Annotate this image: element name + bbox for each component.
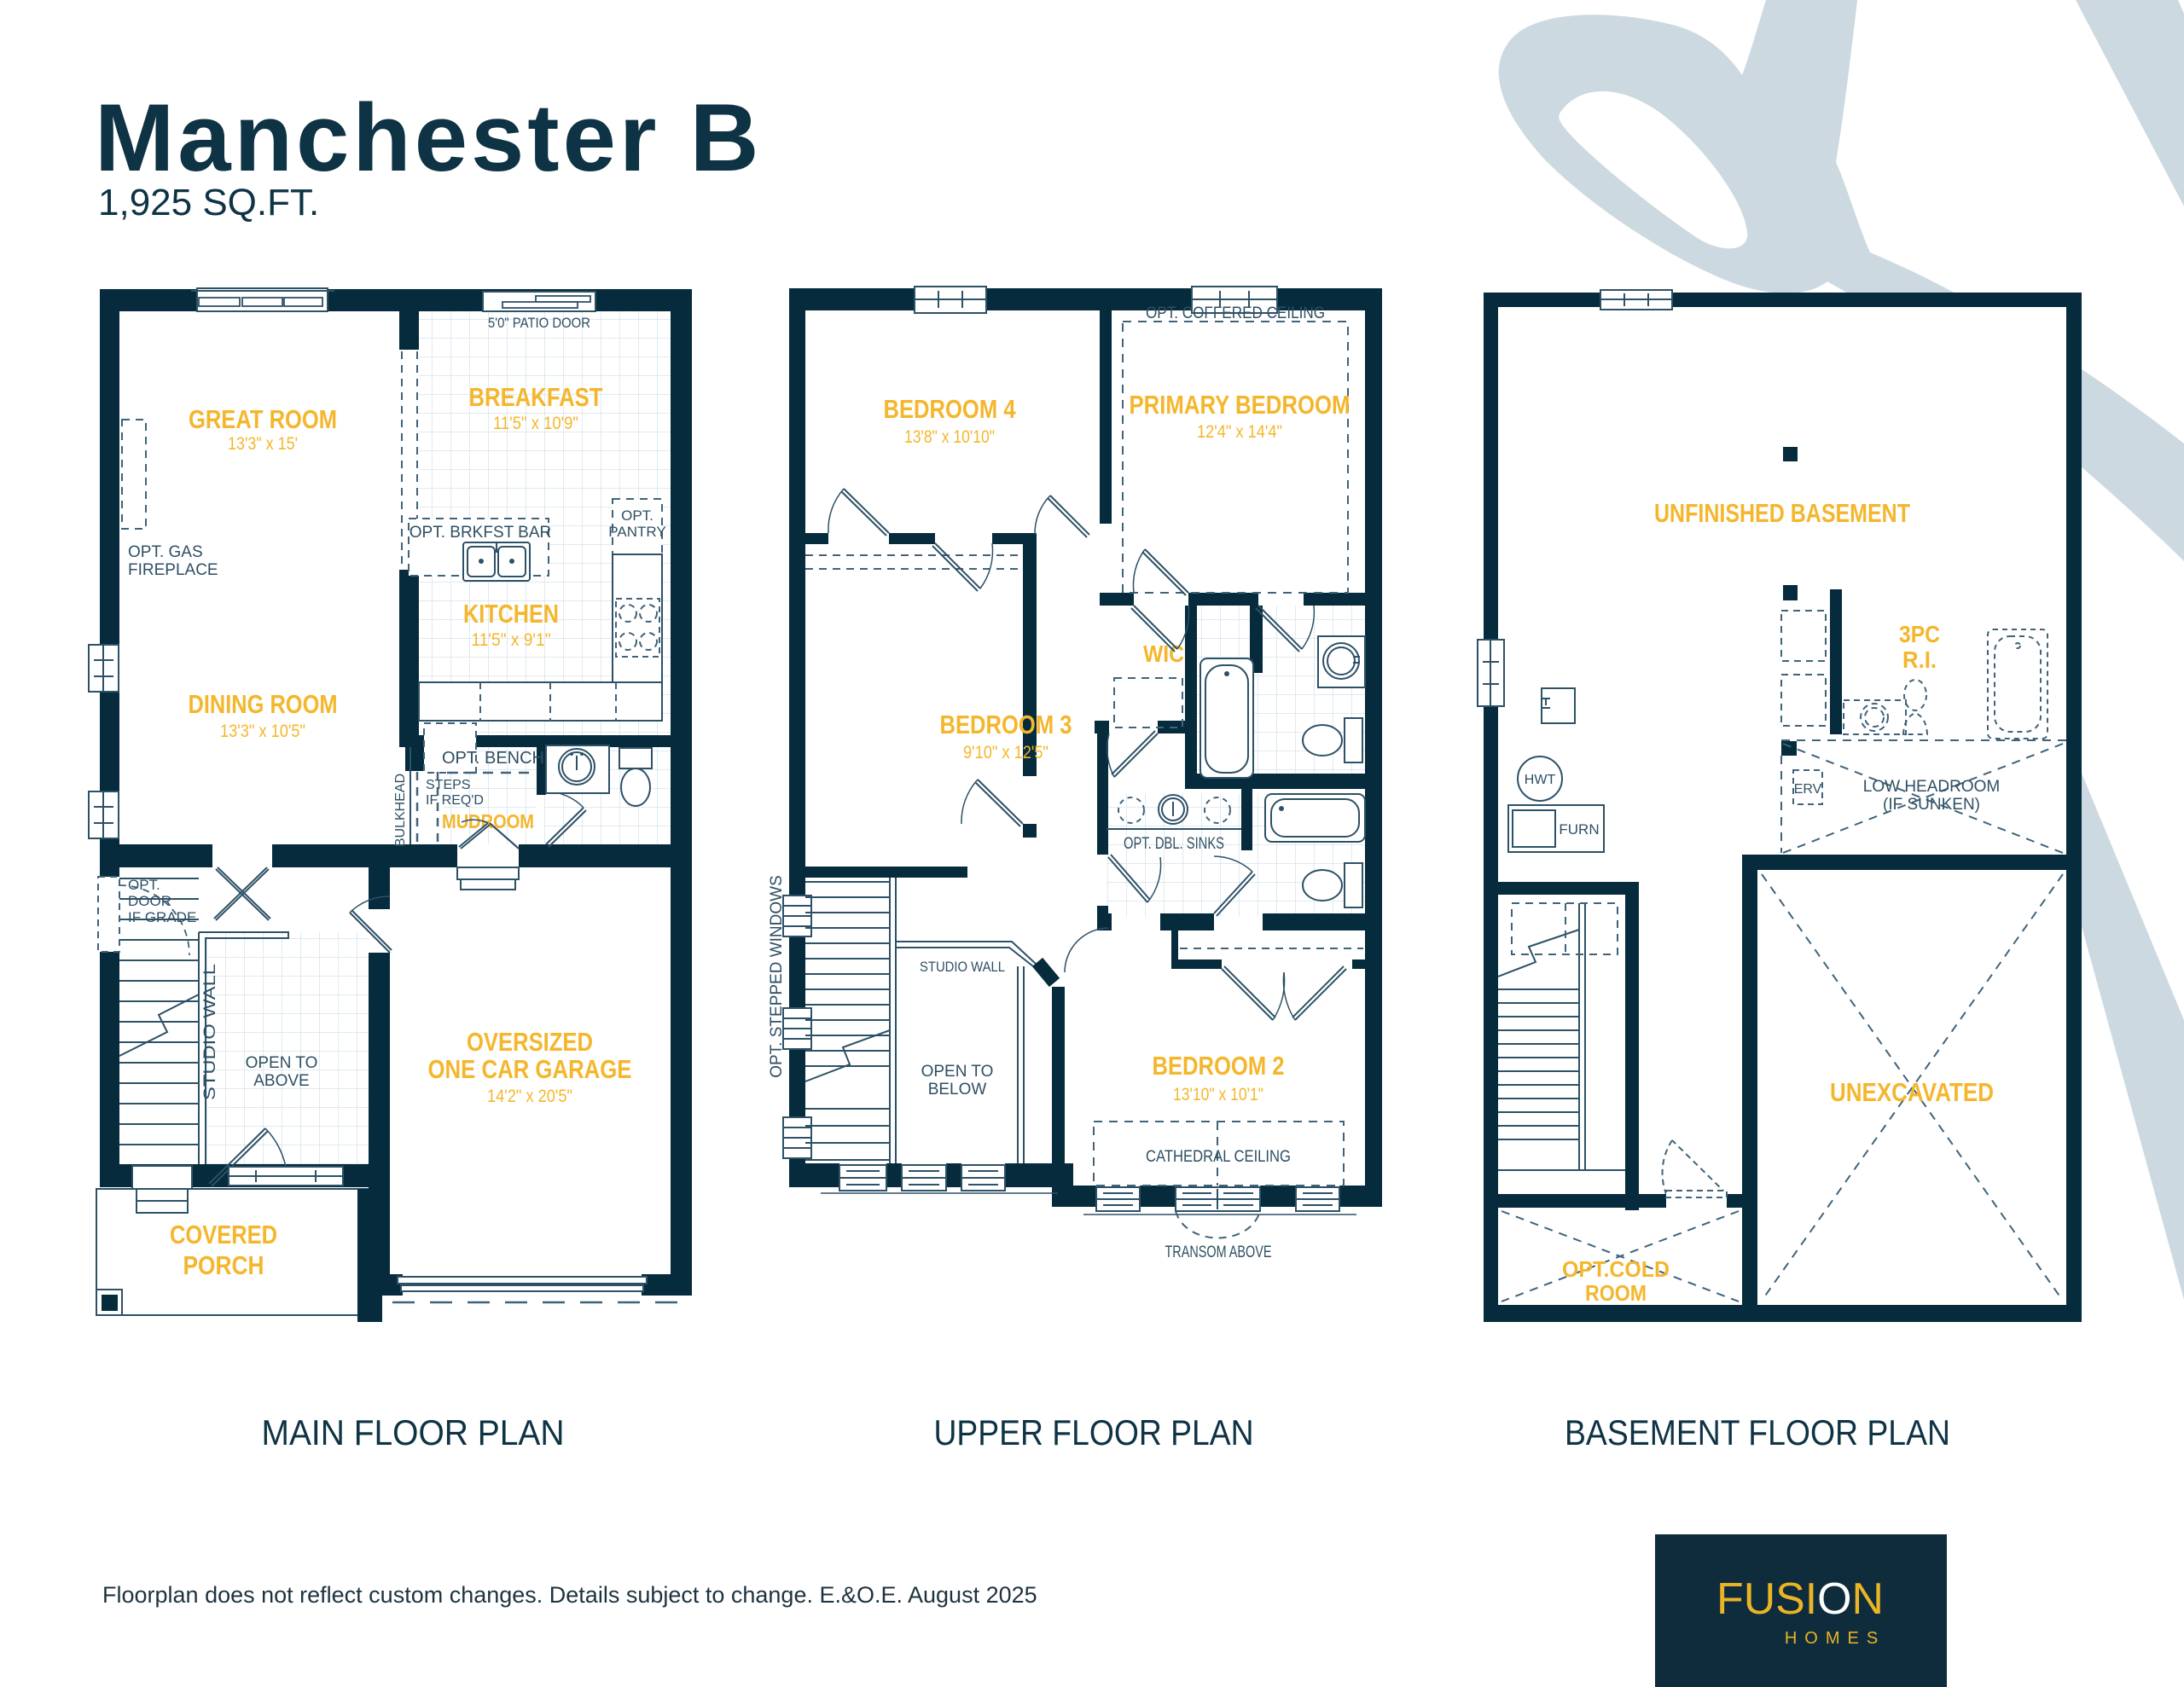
svg-text:ONE CAR GARAGE: ONE CAR GARAGE xyxy=(428,1054,632,1084)
svg-text:11'5" x 9'1": 11'5" x 9'1" xyxy=(472,630,551,650)
svg-text:OPT.: OPT. xyxy=(128,877,160,893)
svg-text:OPEN TO: OPEN TO xyxy=(921,1063,994,1081)
svg-text:BEDROOM 2: BEDROOM 2 xyxy=(1153,1051,1285,1081)
svg-text:BEDROOM 4: BEDROOM 4 xyxy=(884,394,1017,424)
svg-text:IF REQ'D: IF REQ'D xyxy=(426,793,484,808)
svg-text:OPT. DBL. SINKS: OPT. DBL. SINKS xyxy=(1124,835,1224,853)
svg-text:HWT: HWT xyxy=(1525,773,1556,787)
svg-text:DINING ROOM: DINING ROOM xyxy=(189,689,338,719)
svg-text:COVERED: COVERED xyxy=(170,1220,277,1249)
svg-text:Floorplan does not reflect cus: Floorplan does not reflect custom change… xyxy=(102,1582,1037,1608)
svg-text:UNFINISHED BASEMENT: UNFINISHED BASEMENT xyxy=(1654,498,1910,528)
svg-text:ROOM: ROOM xyxy=(1585,1280,1647,1306)
svg-text:IF GRADE: IF GRADE xyxy=(128,909,196,925)
svg-text:BASEMENT FLOOR PLAN: BASEMENT FLOOR PLAN xyxy=(1565,1412,1950,1452)
svg-text:PRIMARY BEDROOM: PRIMARY BEDROOM xyxy=(1130,390,1350,420)
svg-text:5'0" PATIO DOOR: 5'0" PATIO DOOR xyxy=(488,315,590,331)
svg-text:13'3" x 10'5": 13'3" x 10'5" xyxy=(220,722,305,741)
svg-text:OPT. COFFERED CEILING: OPT. COFFERED CEILING xyxy=(1146,304,1325,322)
svg-text:MAIN FLOOR PLAN: MAIN FLOOR PLAN xyxy=(262,1412,565,1452)
svg-text:1,925 SQ.FT.: 1,925 SQ.FT. xyxy=(98,182,319,223)
svg-text:(IF SUNKEN): (IF SUNKEN) xyxy=(1883,796,1980,814)
svg-text:ERV: ERV xyxy=(1794,782,1822,797)
svg-text:13'8" x 10'10": 13'8" x 10'10" xyxy=(904,427,995,447)
svg-text:BELOW: BELOW xyxy=(928,1081,987,1099)
svg-text:DOOR: DOOR xyxy=(128,893,171,909)
svg-text:OPT. STEPPED WINDOWS: OPT. STEPPED WINDOWS xyxy=(768,875,786,1078)
svg-text:BULKHEAD: BULKHEAD xyxy=(393,774,408,847)
svg-text:ABOVE: ABOVE xyxy=(253,1072,309,1090)
svg-text:13'3" x 15': 13'3" x 15' xyxy=(228,434,298,454)
svg-text:OPT.: OPT. xyxy=(621,507,653,524)
svg-text:MUDROOM: MUDROOM xyxy=(442,810,534,832)
svg-text:KITCHEN: KITCHEN xyxy=(463,599,559,629)
svg-text:OPT. BENCH: OPT. BENCH xyxy=(442,749,544,768)
svg-text:GREAT ROOM: GREAT ROOM xyxy=(189,404,337,434)
svg-text:OPT.COLD: OPT.COLD xyxy=(1562,1256,1670,1282)
svg-text:TRANSOM ABOVE: TRANSOM ABOVE xyxy=(1165,1244,1272,1261)
svg-text:FURN: FURN xyxy=(1559,821,1599,838)
svg-text:BEDROOM 3: BEDROOM 3 xyxy=(940,710,1072,739)
svg-text:PANTRY: PANTRY xyxy=(608,524,665,540)
svg-text:FIREPLACE: FIREPLACE xyxy=(128,561,218,579)
svg-text:3PC: 3PC xyxy=(1899,621,1940,647)
svg-text:BREAKFAST: BREAKFAST xyxy=(469,382,603,412)
svg-text:UNEXCAVATED: UNEXCAVATED xyxy=(1830,1077,1994,1107)
svg-text:STEPS: STEPS xyxy=(426,778,470,792)
svg-text:WIC: WIC xyxy=(1143,641,1184,667)
svg-text:LOW HEADROOM: LOW HEADROOM xyxy=(1863,778,2000,796)
svg-text:R.I.: R.I. xyxy=(1902,646,1937,673)
svg-text:STUDIO WALL: STUDIO WALL xyxy=(201,964,219,1100)
svg-text:13'10" x 10'1": 13'10" x 10'1" xyxy=(1173,1085,1263,1104)
svg-text:11'5" x 10'9": 11'5" x 10'9" xyxy=(493,414,578,433)
svg-text:9'10" x 12'5": 9'10" x 12'5" xyxy=(963,743,1048,762)
svg-text:Manchester B: Manchester B xyxy=(95,84,762,191)
svg-text:UPPER FLOOR PLAN: UPPER FLOOR PLAN xyxy=(934,1412,1254,1452)
svg-text:FUSION: FUSION xyxy=(1716,1574,1884,1624)
svg-text:OVERSIZED: OVERSIZED xyxy=(467,1027,593,1057)
svg-text:PORCH: PORCH xyxy=(183,1250,264,1280)
svg-text:12'4" x 14'4": 12'4" x 14'4" xyxy=(1197,422,1282,442)
svg-text:STUDIO WALL: STUDIO WALL xyxy=(920,959,1005,975)
svg-text:HOMES: HOMES xyxy=(1785,1629,1885,1648)
svg-text:OPT. GAS: OPT. GAS xyxy=(128,543,203,561)
svg-text:14'2" x 20'5": 14'2" x 20'5" xyxy=(487,1087,572,1106)
svg-text:OPT. BRKFST BAR: OPT. BRKFST BAR xyxy=(409,524,551,542)
svg-text:OPEN TO: OPEN TO xyxy=(246,1054,318,1072)
svg-text:CATHEDRAL CEILING: CATHEDRAL CEILING xyxy=(1146,1148,1291,1166)
